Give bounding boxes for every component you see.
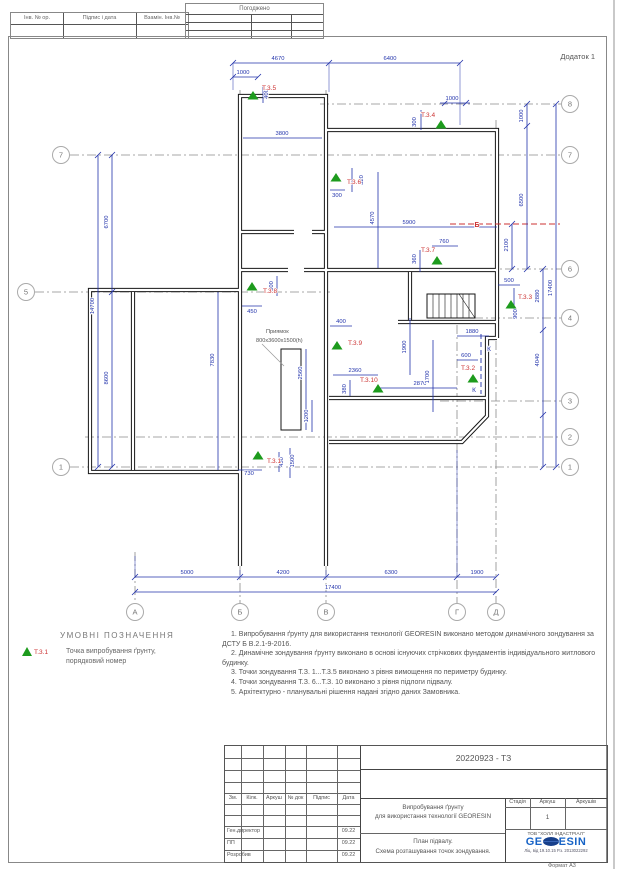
- drawing-sheet: Інв. № ор. Підпис і дата Взамін. Інв.№ П…: [0, 0, 619, 869]
- axis-bubble-label: 5: [24, 288, 28, 297]
- georesin-logo: GEESIN: [506, 837, 606, 848]
- note-1: 1. Випробування ґрунту для використання …: [222, 630, 606, 649]
- sheet-label: Аркуш: [530, 800, 565, 805]
- dim-label: 1200: [304, 410, 310, 423]
- dim-label: 730: [244, 471, 254, 477]
- dim-label: 2880: [535, 290, 541, 303]
- wall-core: [90, 290, 240, 472]
- axis-bubble-label: 6: [568, 265, 572, 274]
- walls: [90, 96, 497, 566]
- legend-title: УМОВНІ ПОЗНАЧЕННЯ: [60, 631, 217, 640]
- dim-label: 4040: [535, 354, 541, 367]
- test-point-icon: [22, 647, 32, 656]
- test-point-label: Т.3.4: [421, 112, 435, 119]
- test-point-label: Т.3.2: [461, 365, 475, 372]
- dim-label: 760: [439, 239, 449, 245]
- dim-label: 6300: [385, 570, 398, 576]
- dim-label: 2100: [504, 239, 510, 252]
- dim-label: 1900: [402, 341, 408, 354]
- annotations: Приямок800х3600х1500(h): [256, 329, 303, 344]
- notes: 1. Випробування ґрунту для використання …: [222, 630, 606, 697]
- license-text: Ліц. від 19.10.15 Р.з. 2013022292: [506, 848, 606, 853]
- axis-bubble-label: 1: [59, 463, 63, 472]
- axis-bubble-label: 8: [568, 100, 572, 109]
- axis-bubbles: 7518764321АБВГД: [18, 96, 579, 621]
- logo-ellipse-icon: [543, 837, 559, 846]
- test-point-marker: [468, 374, 479, 383]
- axis-bubble-label: 2: [568, 433, 572, 442]
- note-3: 3. Точки зондування Т.З. 1...Т.3.5 викон…: [222, 668, 606, 678]
- dim-label: 600: [461, 353, 471, 359]
- dim-label: 1500: [290, 455, 296, 468]
- dim-label: 400: [336, 319, 346, 325]
- sheet-number: 1: [530, 815, 565, 822]
- dim-label: 1900: [471, 570, 484, 576]
- test-point-marker: [331, 173, 342, 182]
- axis-bubble-label: 4: [568, 314, 572, 323]
- dim-label: 4200: [277, 570, 290, 576]
- dim-label: 500: [504, 278, 514, 284]
- subtitle-line1: План підвалу.: [413, 838, 452, 845]
- test-point-label: Т.3.7: [421, 247, 435, 254]
- pit: [262, 344, 301, 430]
- dim-label: 1000: [519, 110, 525, 123]
- dim-label: 8600: [104, 372, 110, 385]
- project-title: Випробування ґрунту для використання тех…: [362, 803, 504, 821]
- dim-label: 5000: [181, 570, 194, 576]
- test-point-marker: [247, 282, 258, 291]
- axis-bubble-label: Г: [455, 608, 459, 617]
- note-2: 2. Динамічне зондування ґрунту виконано …: [222, 649, 606, 668]
- dim-label: 1000: [446, 96, 459, 102]
- axis-bubble-label: А: [132, 608, 137, 617]
- legend-description: Точка випробування ґрунту, порядковий но…: [66, 647, 156, 667]
- subtitle-line2: Схема розташування точок зондування.: [376, 848, 491, 855]
- dim-label: 2360: [349, 368, 362, 374]
- dim-label: 5900: [403, 220, 416, 226]
- dim-label: 300: [412, 117, 418, 127]
- test-point-marker: [332, 341, 343, 350]
- test-point-label: Т.3.6: [347, 179, 361, 186]
- legend: УМОВНІ ПОЗНАЧЕННЯ Т.3.1 Точка випробуван…: [22, 631, 217, 667]
- test-point-label: Т.3.10: [360, 377, 378, 384]
- row-date-1: 09.22: [337, 829, 360, 834]
- dim-label: 6700: [104, 216, 110, 229]
- axis-bubble-label: Д: [493, 608, 498, 617]
- axis-grid: [35, 90, 561, 603]
- dim-label: 300: [332, 193, 342, 199]
- note-4: 4. Точки зондування Т.З. 6...Т.З. 10 вик…: [222, 678, 606, 688]
- dim-label: 3800: [276, 131, 289, 137]
- test-point-label: Т.3.5: [262, 85, 276, 92]
- row-role-3: Розробив: [227, 853, 251, 858]
- legend-desc-line2: порядковий номер: [66, 658, 126, 665]
- dim-label: 6400: [384, 56, 397, 62]
- col-kilk: Кілк.: [241, 796, 263, 801]
- sheet-title: План підвалу. Схема розташування точок з…: [362, 837, 504, 856]
- row-date-3: 09.22: [337, 853, 360, 858]
- col-arkush: Аркуш: [263, 796, 285, 801]
- legend-symbol-label: Т.3.1: [34, 649, 52, 656]
- section-mark: К: [487, 346, 491, 353]
- dim-label: 14700: [90, 298, 96, 314]
- col-pidpys: Підпис: [306, 796, 337, 801]
- row-date-2: 09.22: [337, 841, 360, 846]
- col-zm: Зм.: [225, 796, 241, 801]
- dim-label: 1700: [425, 371, 431, 384]
- dim-label: 900: [513, 309, 519, 319]
- section-mark: Б: [474, 222, 479, 229]
- test-point-label: Т.3.1: [267, 458, 281, 465]
- axis-bubble-label: 7: [568, 151, 572, 160]
- title-line2: для використання технології GEORESIN: [375, 813, 491, 820]
- document-number: 20220923 - ТЗ: [360, 746, 607, 769]
- axis-bubble-label: 3: [568, 397, 572, 406]
- dim-label: 4670: [272, 56, 285, 62]
- test-point-label: Т.3.8: [263, 288, 277, 295]
- dim-label: 2560: [298, 367, 304, 380]
- annotation-text: Приямок: [266, 329, 289, 335]
- stairs: [427, 294, 475, 318]
- dim-label: 4570: [370, 212, 376, 225]
- test-point-marker: [436, 120, 447, 129]
- col-ndok: № док: [285, 796, 306, 801]
- test-point-label: Т.3.3: [518, 294, 532, 301]
- note-5: 5. Архітектурно - планувальні рішення на…: [222, 688, 606, 698]
- dim-label: 360: [412, 254, 418, 264]
- format-note: Формат А3: [548, 863, 576, 869]
- annotation-text: 800х3600х1500(h): [256, 338, 303, 344]
- axis-bubble-label: Б: [238, 608, 243, 617]
- logo-ge: GE: [526, 836, 543, 848]
- row-role-2: ПП: [227, 841, 235, 846]
- logo-esin: ESIN: [559, 836, 587, 848]
- dim-label: 450: [247, 309, 257, 315]
- test-point-marker: [432, 256, 443, 265]
- legend-desc-line1: Точка випробування ґрунту,: [66, 648, 156, 655]
- axis-bubble-label: 1: [568, 463, 572, 472]
- basement-plan-drawing: 4670640010004001000300380010006500210028…: [0, 0, 619, 869]
- dim-label: 7830: [210, 354, 216, 367]
- col-data: Дата: [337, 796, 360, 801]
- dim-label: 17400: [325, 585, 341, 591]
- dim-label: 1000: [237, 70, 250, 76]
- test-point-label: Т.3.9: [348, 340, 362, 347]
- dim-label: 17400: [548, 280, 554, 296]
- test-point-marker: [506, 300, 517, 309]
- row-role-1: Ген.директор: [227, 829, 260, 834]
- sheets-label: Аркушів: [565, 800, 607, 805]
- title-block: Зм. Кілк. Аркуш № док Підпис Дата Ген.ди…: [224, 745, 608, 863]
- title-line1: Випробування ґрунту: [402, 804, 463, 811]
- section-mark: К: [472, 387, 476, 394]
- stage-label: Стадія: [505, 800, 530, 805]
- company-cell: ТОВ "ХОЛЛ ІНДАСТРІАЛ" GEESIN Ліц. від 19…: [506, 830, 606, 861]
- axis-bubble-label: 7: [59, 151, 63, 160]
- axis-bubble-label: В: [323, 608, 328, 617]
- dim-label: 1880: [466, 329, 479, 335]
- test-point-marker: [253, 451, 264, 460]
- dim-label: 380: [342, 384, 348, 394]
- dim-label: 6500: [519, 194, 525, 207]
- test-points: Т.3.5Т.3.4Т.3.6Т.3.7Т.3.8Т.3.3Т.3.9Т.3.2…: [247, 85, 533, 465]
